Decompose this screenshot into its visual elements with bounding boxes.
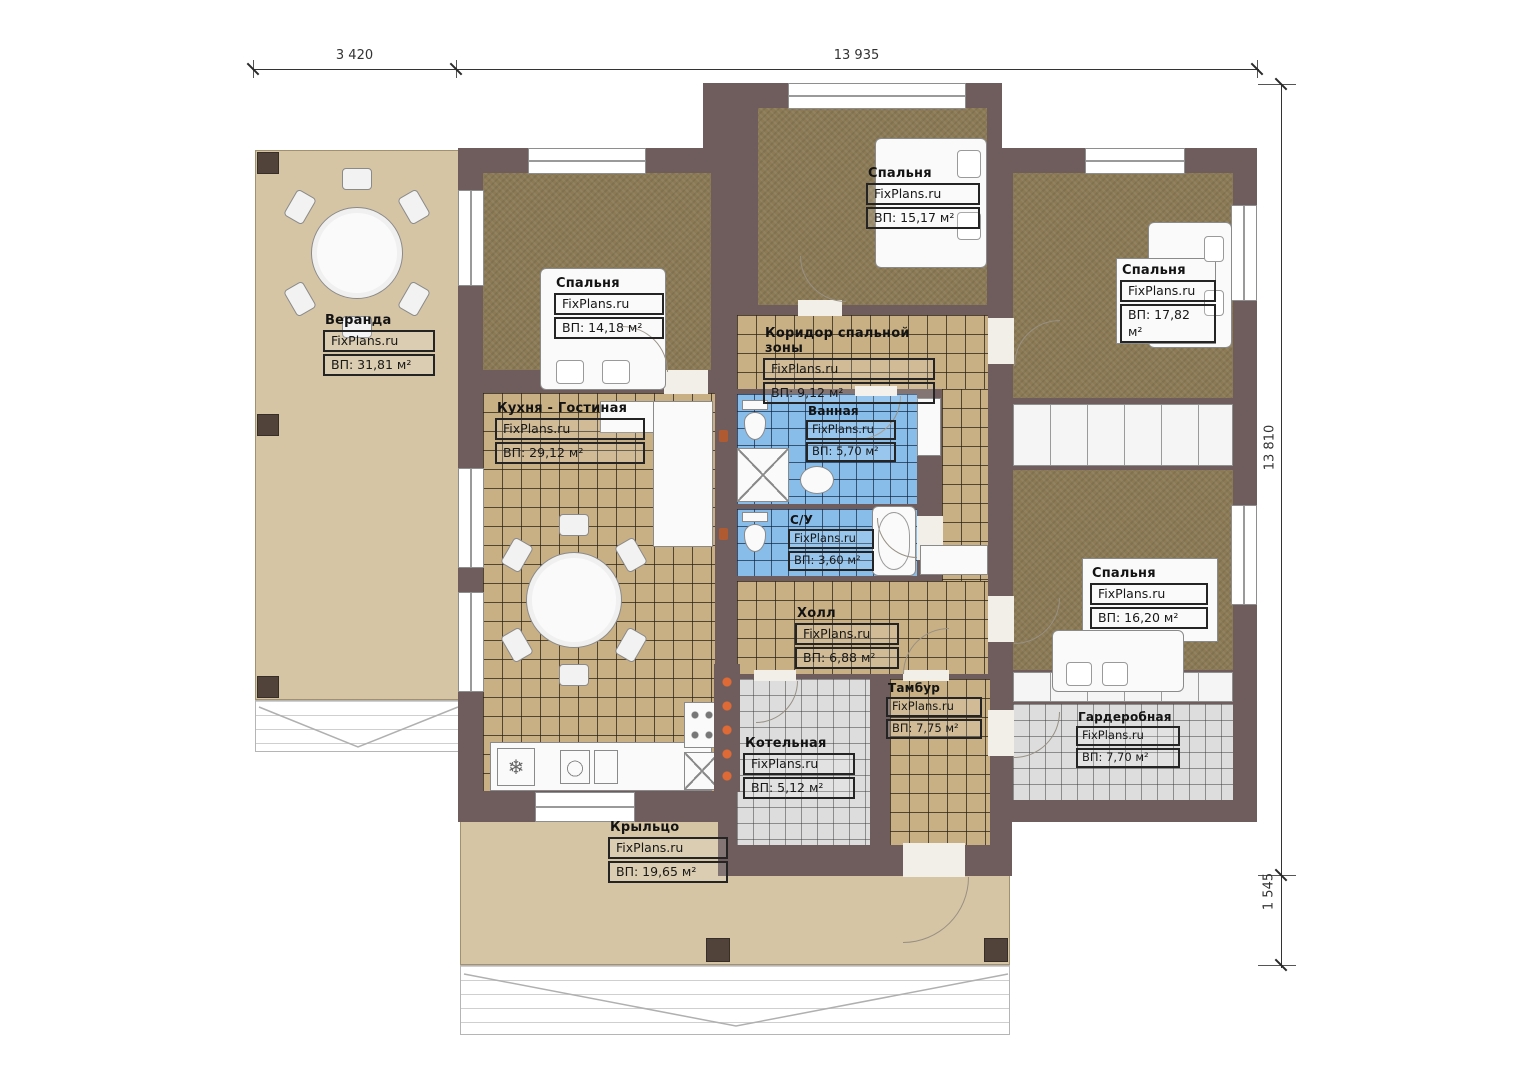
room-name: Ванная <box>808 404 896 418</box>
room-label-bedroom-top: Спальня FixPlans.ru ВП: 15,17 м² <box>866 166 980 229</box>
closet-row-upper <box>1013 404 1233 466</box>
brand-text: FixPlans.ru <box>495 418 645 440</box>
radiator-marker <box>719 430 728 442</box>
chair <box>342 168 372 190</box>
room-label-bedroom-right: Спальня FixPlans.ru ВП: 17,82 м² <box>1120 263 1216 343</box>
dining-table <box>526 552 622 648</box>
window <box>1231 205 1257 301</box>
room-name: Крыльцо <box>610 820 728 835</box>
brand-text: FixPlans.ru <box>886 697 982 717</box>
room-name: Спальня <box>1122 263 1216 278</box>
room-name: Спальня <box>868 166 980 181</box>
pillow <box>1204 236 1224 262</box>
brand-text: FixPlans.ru <box>1090 583 1208 605</box>
brand-text: FixPlans.ru <box>743 753 855 775</box>
room-label-boiler: Котельная FixPlans.ru ВП: 5,12 м² <box>743 736 855 799</box>
kitchen-sink-drainer <box>594 750 618 784</box>
duct-shaft <box>917 398 941 456</box>
window <box>1231 505 1257 605</box>
room-label-wardrobe: Гардеробная FixPlans.ru ВП: 7,70 м² <box>1076 710 1180 768</box>
brand-text: FixPlans.ru <box>323 330 435 352</box>
room-area: ВП: 5,12 м² <box>743 777 855 799</box>
room-label-bedroom-left: Спальня FixPlans.ru ВП: 14,18 м² <box>554 276 664 339</box>
brand-text: FixPlans.ru <box>795 623 899 645</box>
room-area: ВП: 31,81 м² <box>323 354 435 376</box>
door-opening <box>988 318 1014 364</box>
room-label-kitchen: Кухня - Гостиная FixPlans.ru ВП: 29,12 м… <box>495 401 645 464</box>
room-area: ВП: 9,12 м² <box>763 382 935 404</box>
room-name: Веранда <box>325 313 435 328</box>
brand-text: FixPlans.ru <box>788 529 874 549</box>
window <box>528 148 646 174</box>
door-opening <box>754 670 796 681</box>
room-name: Тамбур <box>888 681 982 695</box>
brand-text: FixPlans.ru <box>806 420 896 440</box>
dimension-value-top-left: 3 420 <box>253 48 456 63</box>
window <box>458 468 484 568</box>
door-opening <box>664 370 708 394</box>
hall-cupboard <box>920 545 988 575</box>
service-wall-strip <box>714 664 740 792</box>
pillow <box>556 360 584 384</box>
room-name: Спальня <box>556 276 664 291</box>
brand-text: FixPlans.ru <box>866 183 980 205</box>
dimension-line-right <box>1281 84 1282 968</box>
fridge: ❄ <box>497 748 535 786</box>
brand-text: FixPlans.ru <box>608 837 728 859</box>
room-label-hall: Холл FixPlans.ru ВП: 6,88 м² <box>795 606 899 669</box>
dimension-guide <box>1258 965 1296 966</box>
bathroom-sink <box>800 466 834 494</box>
pillow <box>1066 662 1092 686</box>
room-label-porch: Крыльцо FixPlans.ru ВП: 19,65 м² <box>608 820 728 883</box>
brand-text: FixPlans.ru <box>1120 280 1216 302</box>
room-area: ВП: 5,70 м² <box>806 442 896 462</box>
bathtub-basin <box>878 512 910 570</box>
room-name: Кухня - Гостиная <box>497 401 645 416</box>
room-area: ВП: 19,65 м² <box>608 861 728 883</box>
room-label-bathroom: Ванная FixPlans.ru ВП: 5,70 м² <box>806 404 896 462</box>
porch-steps <box>460 965 1010 1035</box>
room-label-corridor: Коридор спальной зоны FixPlans.ru ВП: 9,… <box>763 326 935 404</box>
kitchen-sink <box>560 750 590 784</box>
room-area: ВП: 29,12 м² <box>495 442 645 464</box>
room-label-wc: С/У FixPlans.ru ВП: 3,60 м² <box>788 513 874 571</box>
toilet-tank <box>742 512 768 522</box>
room-area: ВП: 14,18 м² <box>554 317 664 339</box>
veranda-post <box>257 152 279 174</box>
window <box>788 83 966 109</box>
floor-plan: 3 420 13 935 13 810 1 545 <box>0 0 1528 1080</box>
porch-post <box>706 938 730 962</box>
window <box>535 792 635 822</box>
room-label-bedroom-bottom: Спальня FixPlans.ru ВП: 16,20 м² <box>1090 566 1208 629</box>
room-name: Коридор спальной зоны <box>765 326 935 356</box>
room-area: ВП: 7,70 м² <box>1076 748 1180 768</box>
brand-text: FixPlans.ru <box>1076 726 1180 746</box>
radiator-marker <box>719 528 728 540</box>
room-area: ВП: 6,88 м² <box>795 647 899 669</box>
window <box>1085 148 1185 174</box>
room-area: ВП: 15,17 м² <box>866 207 980 229</box>
shower-tray <box>737 448 789 502</box>
door-opening <box>988 710 1014 756</box>
room-label-tambour: Тамбур FixPlans.ru ВП: 7,75 м² <box>886 681 982 739</box>
chair <box>559 664 589 686</box>
room-area: ВП: 7,75 м² <box>886 719 982 739</box>
brand-text: FixPlans.ru <box>554 293 664 315</box>
porch-post <box>984 938 1008 962</box>
dimension-value-top-right: 13 935 <box>456 48 1257 63</box>
kitchen-cabinet <box>653 401 713 547</box>
veranda-post <box>257 414 279 436</box>
veranda-steps-chevron <box>256 701 461 753</box>
veranda-steps <box>255 700 460 752</box>
entry-door-opening <box>903 843 965 877</box>
door-opening <box>988 596 1014 642</box>
room-name: Гардеробная <box>1078 710 1180 724</box>
room-name: С/У <box>790 513 874 527</box>
porch-steps-chevron <box>461 966 1011 1036</box>
brand-text: FixPlans.ru <box>763 358 935 380</box>
chair <box>559 514 589 536</box>
pillow <box>1102 662 1128 686</box>
room-area: ВП: 16,20 м² <box>1090 607 1208 629</box>
dimension-guide <box>1258 84 1296 85</box>
window <box>458 592 484 692</box>
room-area: ВП: 3,60 м² <box>788 551 874 571</box>
room-name: Спальня <box>1092 566 1208 581</box>
room-area: ВП: 17,82 м² <box>1120 304 1216 343</box>
dimension-value-right-bottom: 1 545 <box>1262 854 1277 930</box>
pillow <box>602 360 630 384</box>
stove <box>684 702 718 748</box>
dimension-line-top <box>253 69 1259 70</box>
window <box>458 190 484 286</box>
room-name: Котельная <box>745 736 855 751</box>
room-label-veranda: Веранда FixPlans.ru ВП: 31,81 м² <box>323 313 435 376</box>
veranda-table <box>311 207 403 299</box>
door-opening <box>798 300 842 316</box>
room-name: Холл <box>797 606 899 621</box>
veranda-post <box>257 676 279 698</box>
dimension-value-right-main: 13 810 <box>1263 406 1278 490</box>
